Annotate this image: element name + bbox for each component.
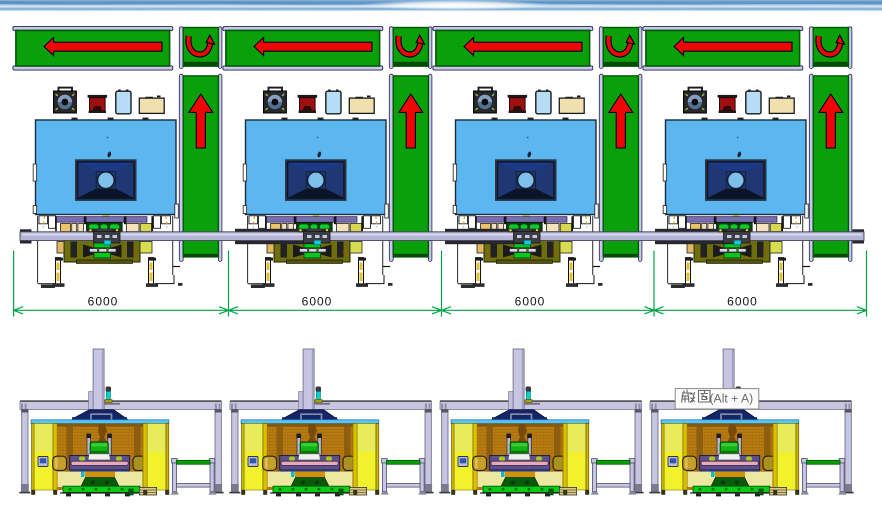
- svg-text:6000: 6000: [302, 295, 333, 309]
- svg-text:6000: 6000: [727, 295, 758, 309]
- svg-text:6000: 6000: [88, 295, 119, 309]
- svg-text:(Alt + A): (Alt + A): [710, 391, 754, 405]
- svg-text:6000: 6000: [515, 295, 546, 309]
